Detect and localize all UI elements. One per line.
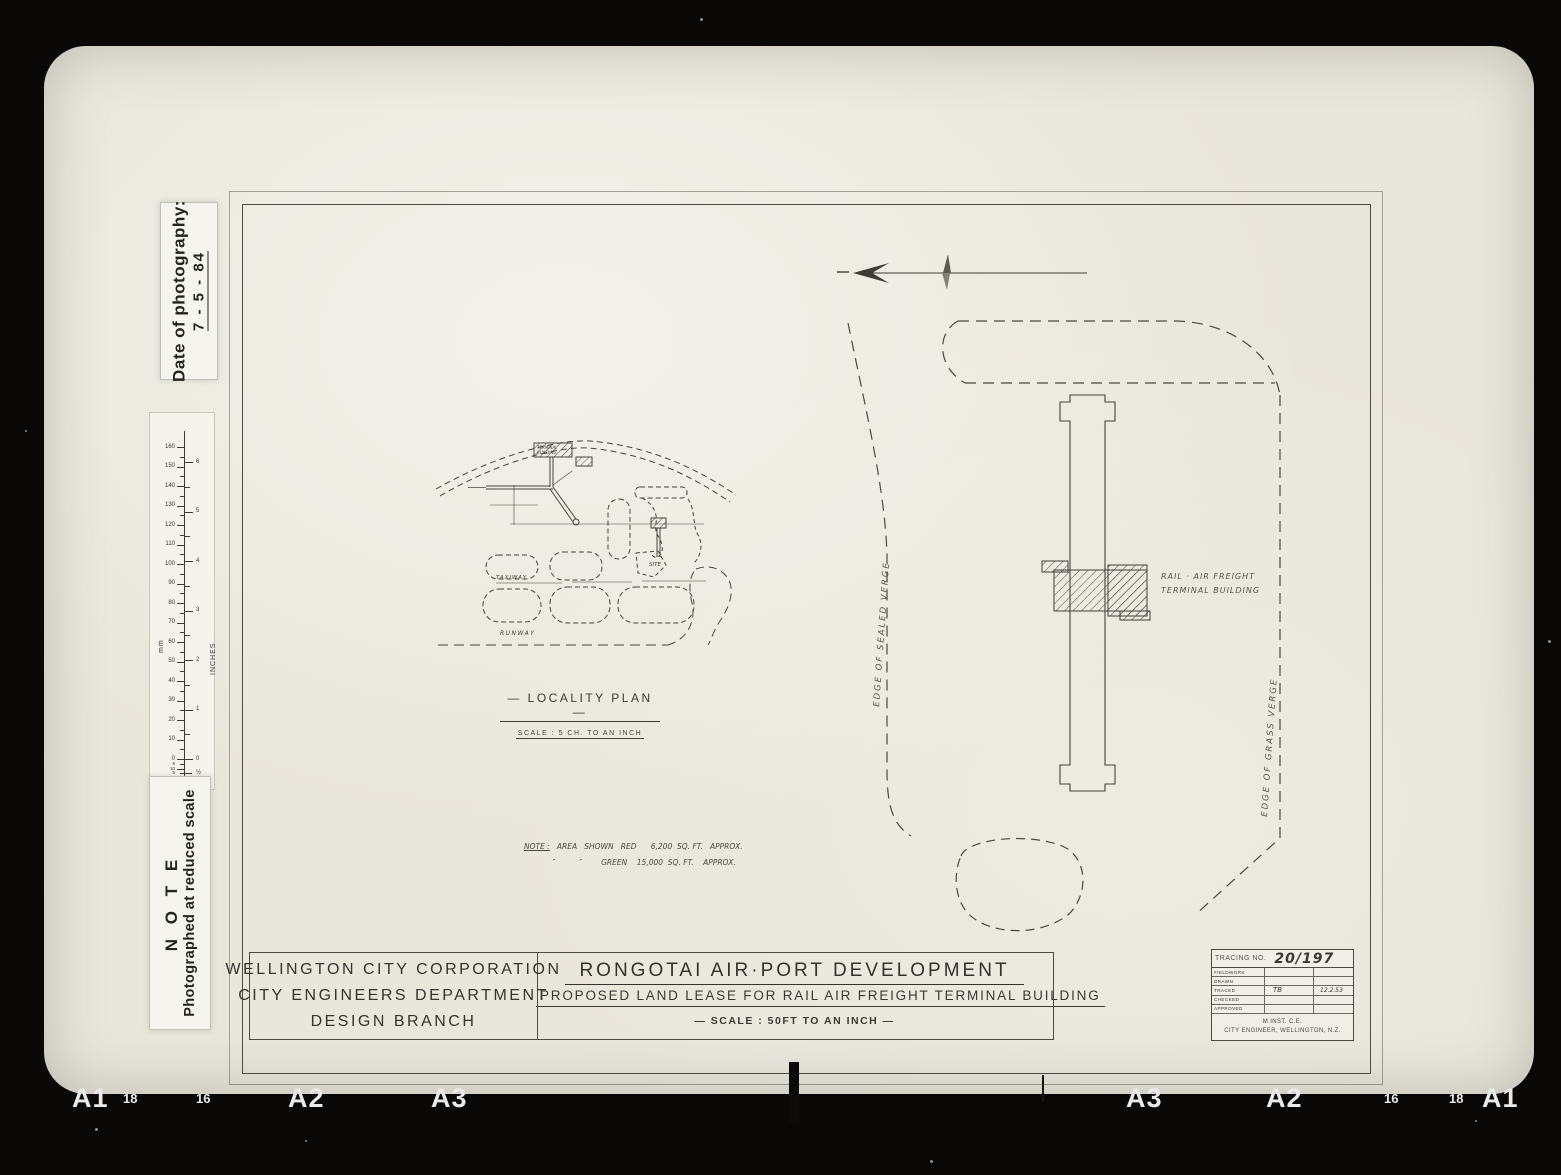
ruler-inch-tick: [185, 561, 193, 562]
ruler-mm-label: 30: [154, 697, 175, 703]
ruler-mm-label: 10: [154, 736, 175, 742]
ruler-mm-minor-tick: [180, 652, 185, 653]
date-stamp-value: 7 - 5 - 84: [191, 251, 209, 331]
tracing-row-date: [1314, 996, 1353, 1004]
ruler-inches-unit-label: INCHES: [210, 643, 217, 675]
coast-boundary-line: [436, 441, 736, 495]
main-site-plan: RAIL · AIR FREIGHT TERMINAL BUILDING EDG…: [775, 255, 1350, 955]
drawing-title: RONGOTAI AIR·PORT DEVELOPMENT: [565, 960, 1023, 985]
org-line-2: CITY ENGINEERS DEPARTMENT: [238, 987, 549, 1005]
tracing-row-date: [1314, 977, 1353, 985]
ruler-mm-label: 100: [154, 561, 175, 567]
ruler-mm-label: 50: [154, 658, 175, 664]
tracing-row-signature: [1265, 977, 1314, 985]
note-stamp-text: Photographed at reduced scale: [182, 789, 198, 1017]
ruler-mm-tick: [177, 467, 185, 468]
ruler-mm-label: 40: [154, 678, 175, 684]
ruler-inch-label: 6: [196, 459, 199, 465]
ruler-mm-tick: [177, 681, 185, 682]
ruler-inch-tick: [185, 462, 193, 463]
road-edge-top: [958, 321, 1280, 395]
grass-verge-edge-line: [1195, 395, 1280, 915]
ruler-mm-label: 70: [154, 619, 175, 625]
ruler-halfinch-tick: [185, 487, 190, 488]
area-note-line1: AREA SHOWN RED 6,200 SQ. FT. APPROX.: [550, 842, 743, 851]
edge-sealed-verge-label: EDGE OF SEALED VERGE: [872, 561, 892, 707]
ruler-belowzero-inch-tick: [185, 773, 192, 774]
ruler-mm-label: 150: [154, 463, 175, 469]
building-label-line1: RAIL · AIR FREIGHT: [1161, 572, 1255, 581]
registration-mark-line: [1042, 1075, 1044, 1102]
film-frame-label: A1: [72, 1083, 109, 1114]
ruler-inch-tick: [185, 611, 193, 612]
tracing-no-label: TRACING NO.: [1215, 955, 1266, 962]
drawing-subtitle: PROPOSED LAND LEASE FOR RAIL AIR FREIGHT…: [536, 988, 1105, 1007]
locality-taxiway-label: TAXIWAY: [496, 575, 527, 581]
ruler-inch-tick: [185, 660, 193, 661]
note-stamp-title: N O T E: [162, 789, 182, 1017]
ruler-mm-tick: [177, 545, 185, 546]
area-note: NOTE : AREA SHOWN RED 6,200 SQ. FT. APPR…: [524, 839, 743, 871]
film-frame-label: A3: [1126, 1083, 1163, 1114]
film-frame-label: 18: [1449, 1091, 1463, 1106]
ruler-mm-tick: [177, 564, 185, 565]
ruler-belowzero-inch-label: ½: [196, 770, 201, 776]
date-stamp-label: Date of photography:: [170, 200, 190, 382]
edge-grass-verge-label: EDGE OF GRASS VERGE: [1260, 677, 1280, 817]
ruler-mm-label: 120: [154, 522, 175, 528]
building-label-line2: TERMINAL BUILDING: [1161, 586, 1260, 595]
ruler-mm-tick: [177, 740, 185, 741]
ruler-axis: [184, 431, 185, 779]
film-frame-label: A2: [1266, 1083, 1303, 1114]
tracing-row-label: DRAWN: [1212, 977, 1265, 985]
tracing-row-label: FIELDWORK: [1212, 968, 1265, 976]
tracing-row-date: [1314, 1005, 1353, 1013]
film-frame-label: A1: [1482, 1083, 1519, 1114]
scale-ruler: 0102030405060708090100110120130140150160…: [149, 412, 215, 790]
ruler-mm-minor-tick: [180, 593, 185, 594]
ruler-inch-label: 4: [196, 558, 199, 564]
tracing-row: FIELDWORK: [1212, 968, 1353, 977]
film-frame-label: 16: [1384, 1091, 1398, 1106]
tracing-row: CHECKED: [1212, 996, 1353, 1005]
ruler-halfinch-tick: [185, 635, 190, 636]
ruler-mm-label: 80: [154, 600, 175, 606]
locality-site-label: SITE: [649, 562, 661, 568]
tracing-row-label: TRACED: [1212, 986, 1265, 994]
film-frame-label: A2: [288, 1083, 325, 1114]
terminal-building-hatch: [1042, 561, 1150, 620]
ruler-mm-minor-tick: [180, 476, 185, 477]
locality-terminal-label-2: BUILDING: [537, 450, 556, 455]
ruler-inch-label: 1: [196, 706, 199, 712]
locality-plan-title: — LOCALITY PLAN —: [500, 691, 660, 722]
tracing-no-value: 20/197: [1274, 951, 1334, 967]
ruler-inch-tick: [185, 759, 193, 760]
film-frame-label: 16: [196, 1091, 210, 1106]
date-stamp: Date of photography: 7 - 5 - 84: [160, 202, 218, 380]
ruler-mm-minor-tick: [180, 554, 185, 555]
tracing-row-signature: [1265, 968, 1314, 976]
ruler-mm-minor-tick: [180, 749, 185, 750]
ruler-mm-tick: [177, 486, 185, 487]
ruler-inch-label: 3: [196, 607, 199, 613]
ruler-inch-label: 0: [196, 756, 199, 762]
ruler-halfinch-tick: [185, 586, 190, 587]
ruler-mm-minor-tick: [180, 496, 185, 497]
ruler-mm-minor-tick: [180, 574, 185, 575]
ruler-mm-tick: [177, 447, 185, 448]
ruler-mm-tick: [177, 584, 185, 585]
org-line-1: WELLINGTON CITY CORPORATION: [226, 961, 562, 979]
area-note-line2: ″ ″ GREEN 15,000 SQ. FT. APPROX.: [524, 858, 736, 867]
film-frame-label: A3: [431, 1083, 468, 1114]
tracing-row-date: [1314, 968, 1353, 976]
ruler-mm-tick: [177, 642, 185, 643]
tracing-row: DRAWN: [1212, 977, 1353, 986]
ruler-mm-label: 140: [154, 483, 175, 489]
ruler-mm-label: 90: [154, 580, 175, 586]
tracing-row-signature: [1265, 1005, 1314, 1013]
ruler-mm-tick: [177, 720, 185, 721]
tracing-row-signature: TB: [1265, 986, 1314, 994]
ruler-inch-tick: [185, 710, 193, 711]
tracing-row: TRACEDTB12.2.53: [1212, 986, 1353, 995]
ruler-mm-tick: [177, 662, 185, 663]
tracing-row-label: CHECKED: [1212, 996, 1265, 1004]
ruler-mm-label: 130: [154, 502, 175, 508]
ruler-halfinch-tick: [185, 536, 190, 537]
locality-site-hatch: [651, 518, 666, 528]
ruler-belowzero-tick: [180, 764, 185, 765]
ruler-mm-minor-tick: [180, 730, 185, 731]
ruler-mm-tick: [177, 701, 185, 702]
archival-photo-page: { "photo": { "date_stamp": { "label": "D…: [0, 0, 1561, 1175]
locality-plan-caption: — LOCALITY PLAN — SCALE : 5 CH. TO AN IN…: [500, 691, 660, 740]
title-block-main: RONGOTAI AIR·PORT DEVELOPMENT PROPOSED L…: [536, 952, 1054, 1040]
ruler-mm-minor-tick: [180, 613, 185, 614]
grass-island-outline: [956, 839, 1083, 931]
ruler-mm-unit-label: mm: [158, 639, 165, 653]
north-arrow-icon: [837, 255, 1087, 290]
locality-plan-map: TERMINAL BUILDING SITE TAXIWAY RUNWAY: [430, 425, 745, 670]
area-note-heading: NOTE :: [524, 842, 550, 851]
registration-mark-bar: [789, 1062, 799, 1124]
ruler-inch-label: 5: [196, 508, 199, 514]
ruler-halfinch-tick: [185, 685, 190, 686]
ruler-mm-tick: [177, 525, 185, 526]
ruler-inch-tick: [185, 512, 193, 513]
ruler-mm-tick: [177, 759, 185, 760]
tracing-row-date: 12.2.53: [1314, 986, 1353, 994]
film-frame-label: 18: [123, 1091, 137, 1106]
locality-plan-scale: SCALE : 5 CH. TO AN INCH: [516, 727, 644, 739]
tracing-row: APPROVED: [1212, 1005, 1353, 1014]
note-stamp: N O T E Photographed at reduced scale: [149, 776, 211, 1030]
ruler-belowzero-tick: [177, 769, 185, 770]
ruler-inch-label: 2: [196, 657, 199, 663]
tracing-row-label: APPROVED: [1212, 1005, 1265, 1013]
org-line-3: DESIGN BRANCH: [311, 1013, 477, 1031]
drawing-scale: — SCALE : 50FT TO AN INCH —: [536, 1015, 1053, 1027]
ruler-mm-minor-tick: [180, 457, 185, 458]
ruler-mm-label: 160: [154, 444, 175, 450]
locality-runway-label: RUNWAY: [500, 630, 535, 637]
ruler-mm-minor-tick: [180, 632, 185, 633]
ruler-mm-minor-tick: [180, 671, 185, 672]
tracing-box: TRACING NO. 20/197 FIELDWORKDRAWNTRACEDT…: [1211, 949, 1354, 1041]
ruler-mm-label: 110: [154, 541, 175, 547]
engineer-line-2: CITY ENGINEER, WELLINGTON, N.Z.: [1212, 1027, 1353, 1036]
ruler-mm-tick: [177, 623, 185, 624]
sealed-verge-edge-line: [848, 323, 911, 836]
ruler-mm-label: 20: [154, 717, 175, 723]
ruler-mm-tick: [177, 603, 185, 604]
ruler-mm-minor-tick: [180, 691, 185, 692]
ruler-mm-minor-tick: [180, 515, 185, 516]
ruler-halfinch-tick: [185, 734, 190, 735]
engineer-line-1: M.INST. C.E.: [1212, 1018, 1353, 1027]
ruler-mm-tick: [177, 506, 185, 507]
title-block-organisation: WELLINGTON CITY CORPORATION CITY ENGINEE…: [249, 952, 538, 1040]
tracing-row-signature: [1265, 996, 1314, 1004]
